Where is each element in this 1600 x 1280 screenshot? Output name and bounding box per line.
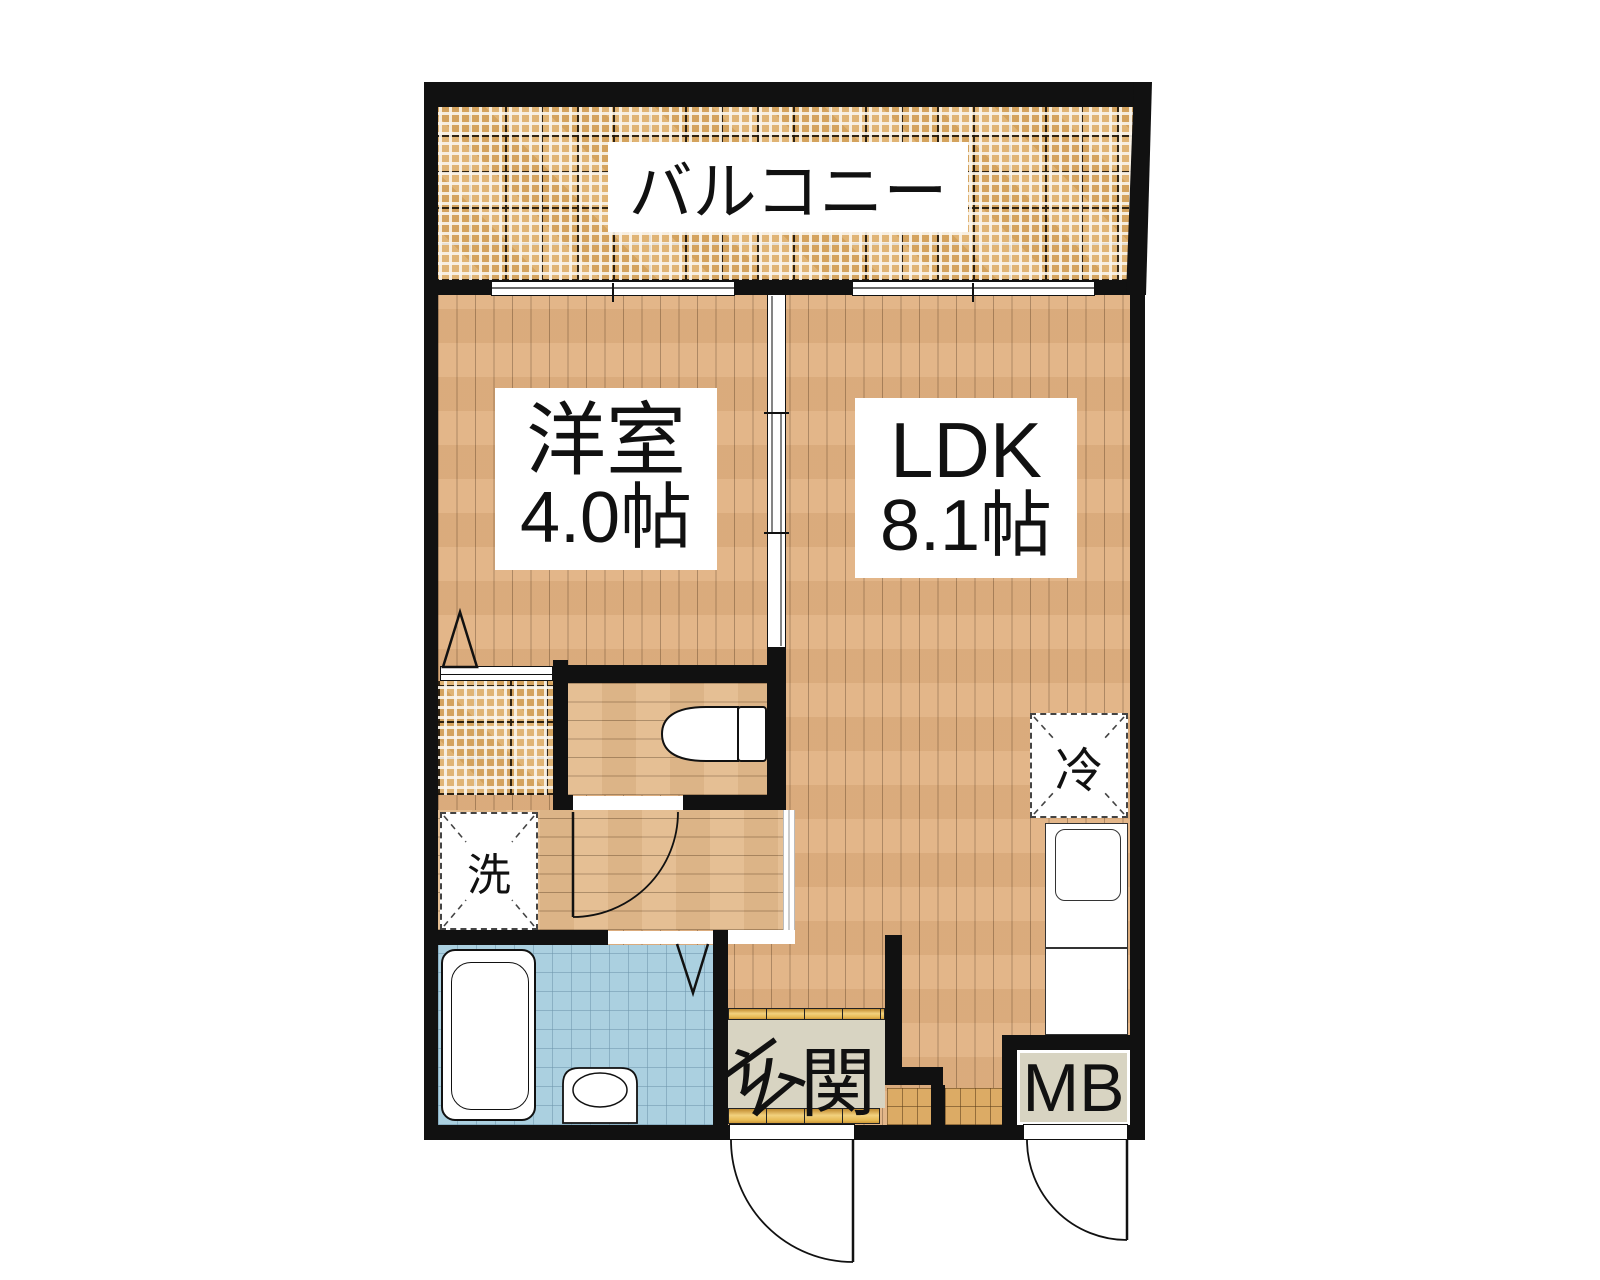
toilet-door-gap xyxy=(573,796,683,810)
partition-sliding-door xyxy=(767,295,786,647)
wall-left xyxy=(424,82,438,1140)
wall-top xyxy=(424,82,1145,107)
ldk-threshold xyxy=(783,810,795,930)
bathroom-door-gap xyxy=(608,931,713,944)
window-western-room xyxy=(491,281,735,296)
mb-left-wall xyxy=(1002,1050,1017,1125)
bathtub xyxy=(441,949,536,1121)
bathtub-inner xyxy=(451,962,529,1110)
step-parquet-right xyxy=(945,1088,1002,1125)
western-room-size: 4.0帖 xyxy=(520,481,692,557)
kitchen-counter xyxy=(1045,823,1128,1035)
meter-box-label: MB xyxy=(1023,1049,1125,1127)
bathroom-top-wall xyxy=(424,930,608,945)
washer-space: 洗 xyxy=(440,812,538,930)
mb-top-wall xyxy=(1002,1035,1145,1050)
wall-right xyxy=(1130,280,1145,1140)
balcony-label-box: バルコニー xyxy=(608,142,968,232)
counter-divider xyxy=(1046,947,1127,949)
window-ldk xyxy=(852,281,1095,296)
balcony-label: バルコニー xyxy=(629,141,948,233)
step-wall-stub xyxy=(931,1085,945,1125)
floor-plan: バルコニー 玄 関 MB 冷 洗 xyxy=(0,0,1600,1280)
step-wall-vertical xyxy=(885,935,902,1085)
mb-door-arc xyxy=(1027,1140,1127,1240)
toilet-floor xyxy=(568,683,767,795)
western-room-label: 洋室 xyxy=(526,401,686,481)
mb-door-gap xyxy=(1023,1124,1128,1140)
washer-label: 洗 xyxy=(467,839,511,903)
refrigerator-space: 冷 xyxy=(1030,713,1128,818)
toilet-bottom-wall-right xyxy=(683,795,786,810)
ldk-size: 8.1帖 xyxy=(880,489,1052,565)
closet-floor xyxy=(438,681,553,795)
closet-door-track xyxy=(440,666,553,681)
western-room-label-box: 洋室 4.0帖 xyxy=(495,388,717,570)
meter-box-floor: MB xyxy=(1017,1050,1130,1125)
entry-door-arc xyxy=(731,1140,853,1262)
ldk-label: LDK xyxy=(890,411,1042,489)
step-parquet-left xyxy=(887,1088,931,1125)
step-wall-foot xyxy=(885,1067,943,1085)
toilet-top-wall xyxy=(553,665,786,683)
ldk-label-box: LDK 8.1帖 xyxy=(855,398,1077,578)
refrigerator-label: 冷 xyxy=(1055,731,1103,801)
genkan-label-char2: 関 xyxy=(800,1022,876,1132)
kitchen-sink xyxy=(1055,829,1121,901)
toilet-bottom-wall-left xyxy=(553,795,573,810)
